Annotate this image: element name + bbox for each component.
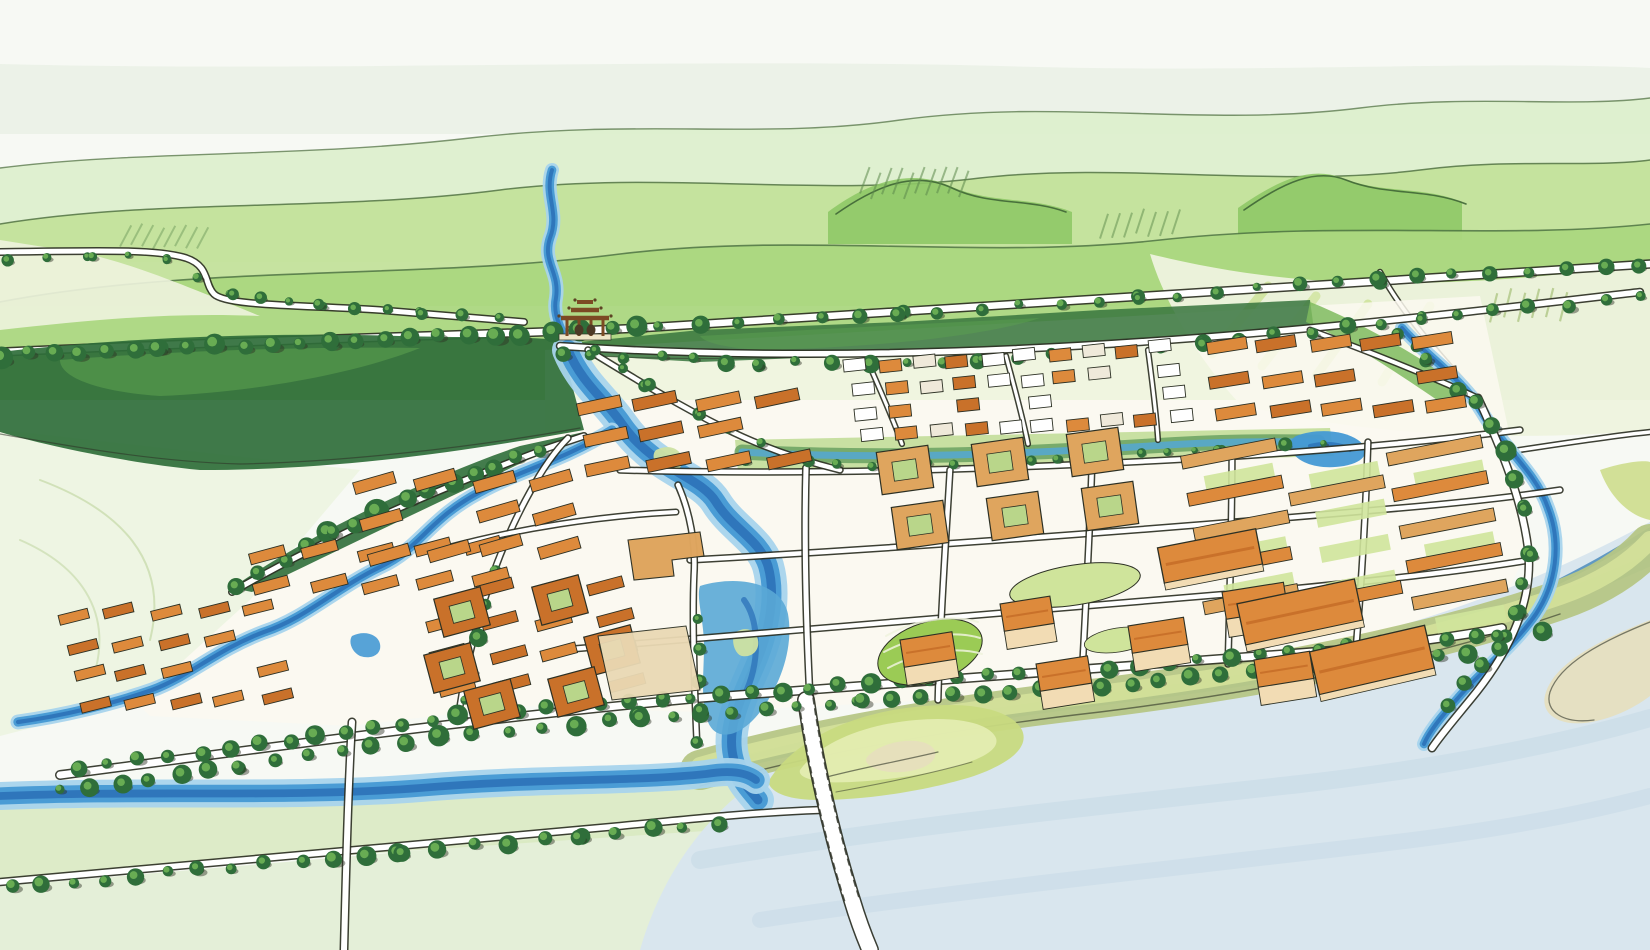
illustration-canvas [0, 0, 1650, 950]
master-plan-rendering [0, 0, 1650, 950]
